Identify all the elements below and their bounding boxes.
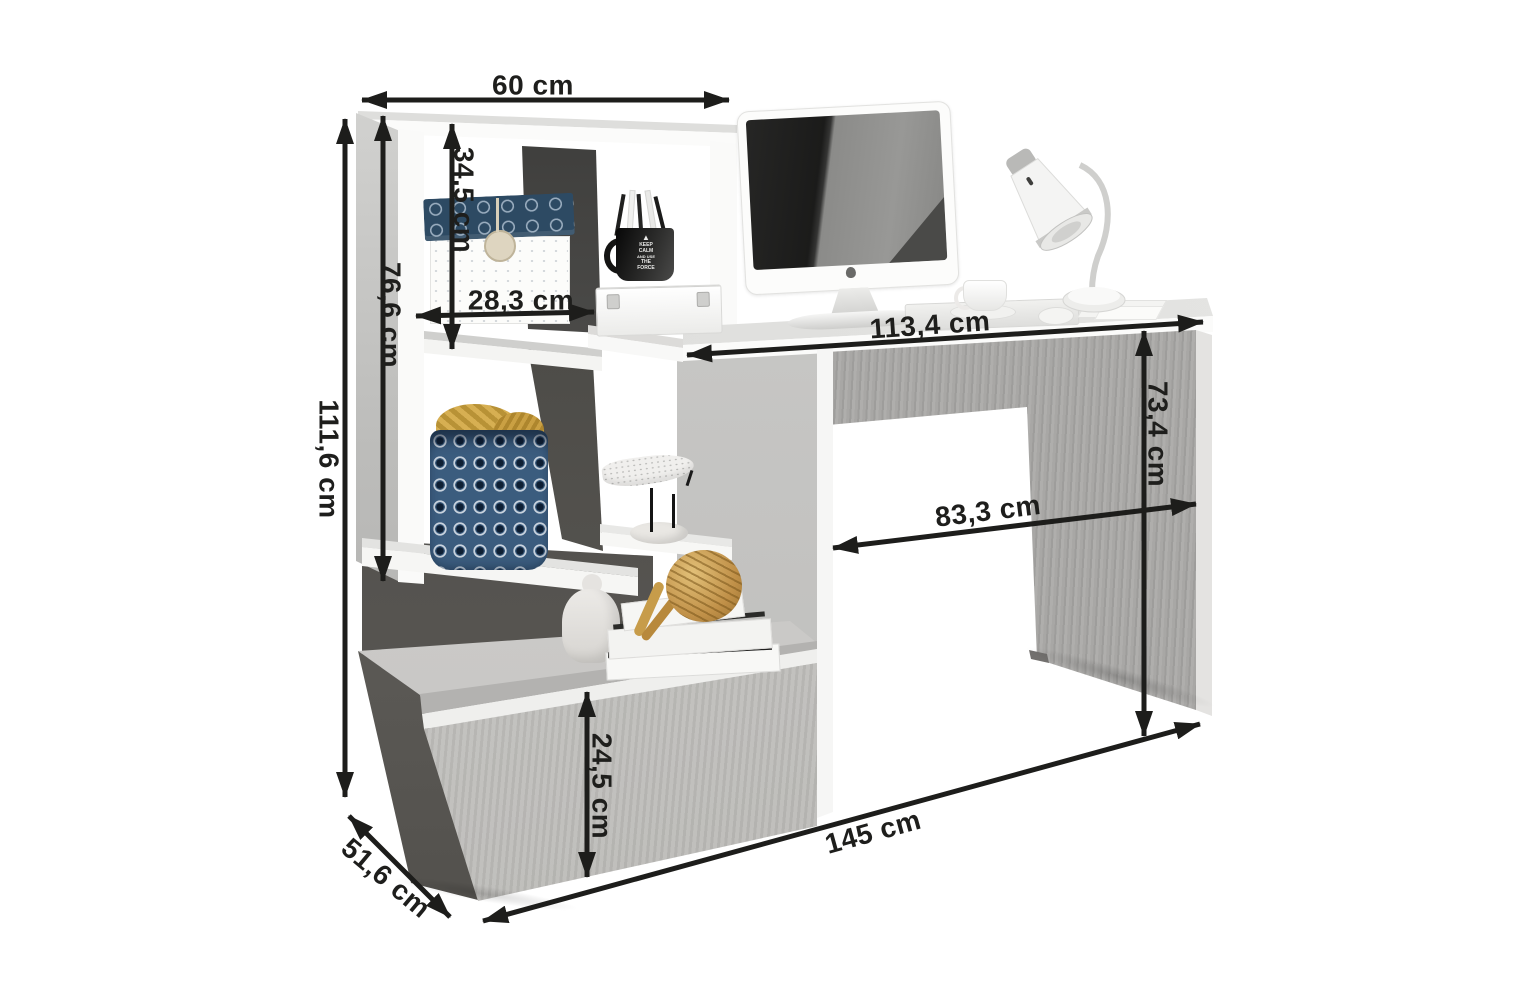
mug-print-line: FORCE bbox=[628, 265, 664, 271]
dim-label-73-4cm: 73,4 cm bbox=[1143, 381, 1172, 487]
dim-label-28-3cm: 28,3 cm bbox=[468, 285, 574, 314]
storage-box-string bbox=[496, 198, 499, 232]
basket bbox=[430, 430, 548, 570]
bird-leg bbox=[672, 494, 675, 528]
pencil-cup: ▲ KEEP CALM AND USE THE FORCE bbox=[604, 190, 676, 282]
apple-logo-icon bbox=[846, 267, 857, 279]
rope-knot bbox=[636, 548, 746, 648]
vader-icon: ▲ bbox=[628, 233, 664, 242]
dim-label-60cm: 60 cm bbox=[492, 70, 574, 99]
storage-box-button bbox=[484, 230, 516, 262]
bird-figurine bbox=[598, 448, 708, 548]
mug-print: ▲ KEEP CALM AND USE THE FORCE bbox=[628, 233, 664, 271]
rope-ball bbox=[666, 550, 742, 622]
bird-leg bbox=[650, 488, 653, 532]
bird-base bbox=[630, 522, 688, 544]
lamp-base-top bbox=[1068, 287, 1120, 305]
dim-label-145cm: 145 cm bbox=[822, 805, 924, 860]
bird-body bbox=[600, 450, 695, 491]
clasp-icon bbox=[607, 294, 620, 309]
lamp-shade bbox=[1002, 140, 1098, 257]
dim-label-34-5cm: 34,5 cm bbox=[449, 147, 478, 253]
dim-label-24-5cm: 24,5 cm bbox=[587, 733, 616, 839]
dim-label-111-6cm: 111,6 cm bbox=[314, 399, 343, 518]
dim-label-83-3cm: 83,3 cm bbox=[933, 490, 1042, 532]
clasp-box bbox=[595, 284, 722, 336]
desk-lamp bbox=[1002, 140, 1147, 322]
clasp-icon bbox=[697, 292, 710, 307]
dim-label-76-6cm: 76,6 cm bbox=[376, 262, 405, 368]
furniture-dimension-diagram: ▲ KEEP CALM AND USE THE FORCE bbox=[0, 0, 1536, 1002]
